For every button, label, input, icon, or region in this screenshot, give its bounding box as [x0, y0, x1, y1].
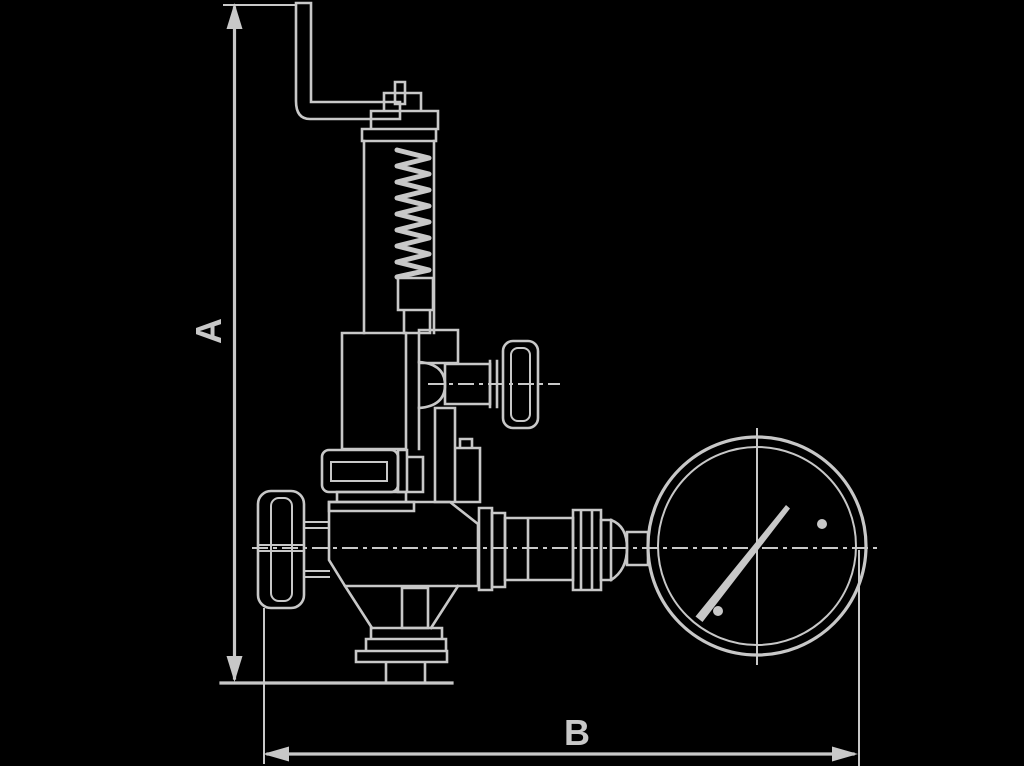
- collar: [601, 520, 611, 580]
- dimension-a: A: [188, 3, 452, 683]
- bonnet-cap-stack: [362, 82, 438, 141]
- mid-flange-side: [398, 450, 423, 492]
- dimension-b-arrow-left-icon: [263, 747, 289, 762]
- dimension-b: B: [263, 551, 859, 766]
- dimension-a-arrow-bottom-icon: [227, 656, 243, 682]
- left-handwheel-hub: [271, 498, 292, 601]
- valve-body: [329, 502, 478, 586]
- gauge-needle-dot: [713, 606, 723, 616]
- hex-nut: [573, 510, 601, 590]
- spring-housing: [342, 330, 458, 449]
- dimension-b-arrow-right-icon: [832, 747, 858, 762]
- dimension-b-label: B: [564, 712, 590, 753]
- gauge-needle: [696, 505, 791, 622]
- dimension-a-arrow-top-icon: [227, 3, 243, 29]
- gauge-screw-dot: [817, 519, 827, 529]
- stem-lines: [304, 522, 329, 577]
- drawing-svg: A B: [0, 0, 1024, 766]
- pressure-gauge: [648, 429, 866, 664]
- bottom-flange: [356, 628, 447, 683]
- spring-coils: [397, 150, 429, 277]
- union-ring: [492, 513, 505, 587]
- spring-adjuster-nut: [398, 278, 433, 333]
- reducer: [611, 520, 627, 580]
- centerlines: [252, 384, 878, 548]
- bottom-cone: [345, 586, 458, 628]
- mid-flange-slot: [331, 462, 387, 481]
- left-handwheel-rim: [258, 491, 304, 608]
- down-pipe: [435, 408, 480, 502]
- left-handwheel: [258, 491, 304, 608]
- dimension-a-label: A: [188, 318, 229, 344]
- valve-assembly: [258, 3, 648, 683]
- figure-canvas: A B: [0, 0, 1024, 766]
